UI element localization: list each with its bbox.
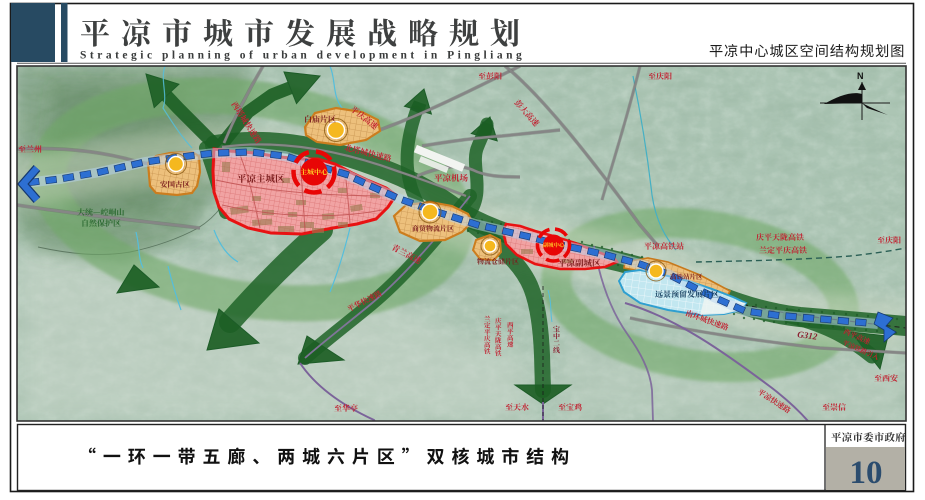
svg-text:Strategic planning of urban de: Strategic planning of urban development … (80, 50, 525, 62)
svg-text:10: 10 (850, 455, 883, 491)
svg-text:N: N (857, 71, 864, 81)
